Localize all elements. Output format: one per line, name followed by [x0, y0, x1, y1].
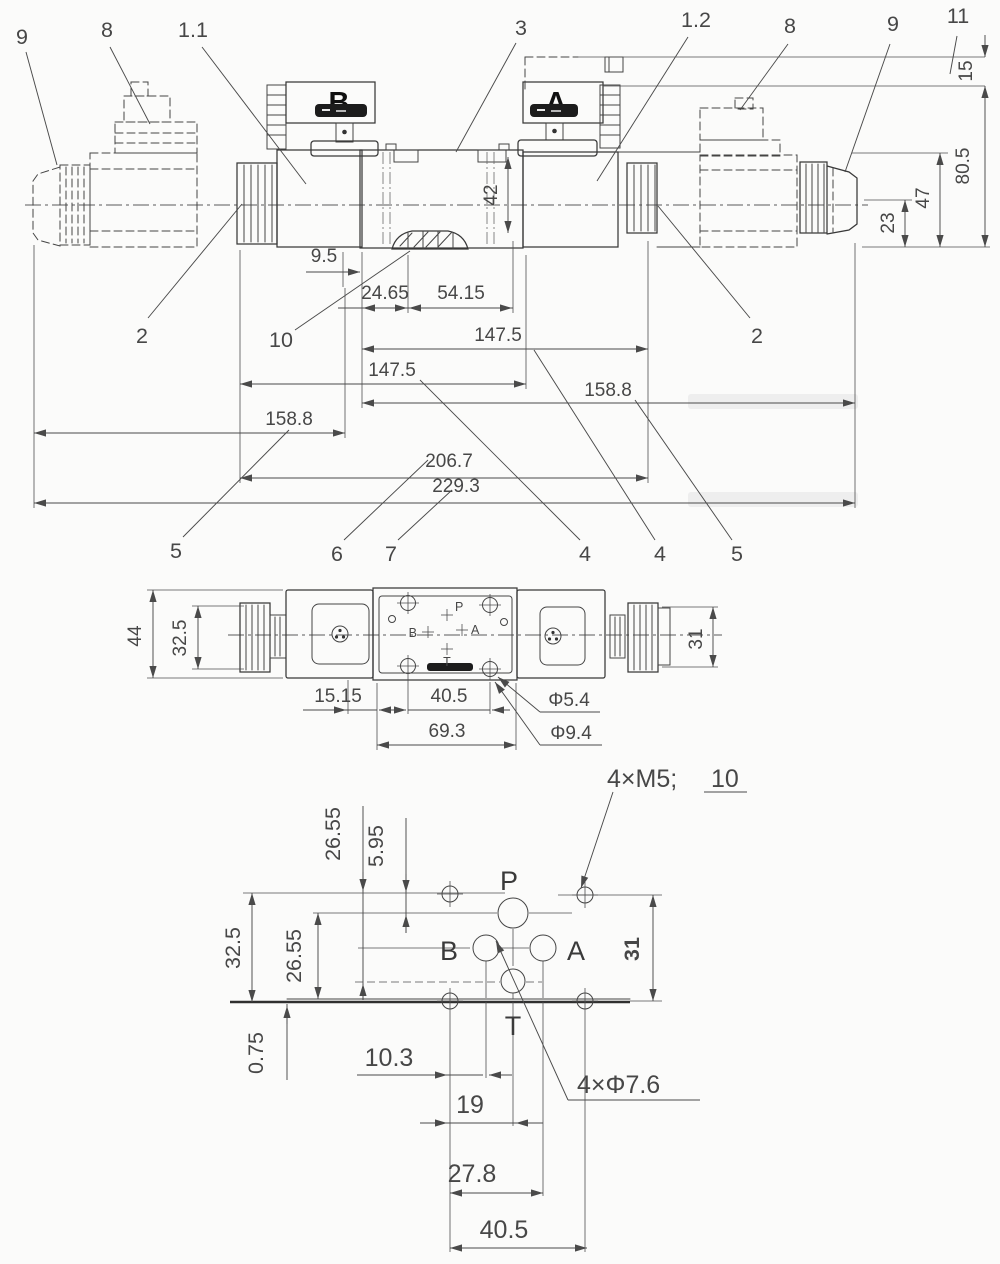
dim-206-7: 206.7 [425, 451, 473, 472]
dim-147-5-b: 147.5 [368, 360, 416, 381]
callout-11: 11 [947, 4, 969, 28]
callout-9-left: 9 [16, 25, 28, 49]
callout-8-left: 8 [101, 18, 113, 42]
dim-0-75: 0.75 [244, 1032, 268, 1074]
callout-5-right: 5 [731, 542, 743, 566]
dim-19: 19 [456, 1091, 484, 1119]
right-dashed-solenoid [700, 98, 857, 247]
dim-5-95: 5.95 [364, 825, 388, 867]
port-a-mark: A [471, 623, 480, 637]
drawing-page: B A [0, 0, 1000, 1264]
port-a-hole [530, 935, 556, 961]
front-dims-right: 15 80.5 47 23 42 [481, 35, 985, 247]
callout-6: 6 [331, 542, 343, 566]
dim-54-15: 54.15 [437, 283, 485, 304]
thread-depth: 10 [711, 765, 739, 793]
dim-47: 47 [913, 187, 934, 208]
dim-24-65: 24.65 [361, 283, 409, 304]
dim-31-bottom: 31 [620, 937, 644, 961]
dim-69-3: 69.3 [429, 721, 466, 742]
dim-40-5-bottom: 40.5 [480, 1216, 529, 1244]
dim-32-5-bottom: 32.5 [221, 927, 245, 969]
callout-10: 10 [269, 328, 293, 352]
right-solenoid [523, 152, 700, 247]
hole-callout: 4×Φ7.6 [577, 1071, 660, 1099]
front-dims-bottom: 9.5 24.65 54.15 147.5 147.5 158.8 158.8 … [34, 241, 855, 508]
left-dashed-solenoid [33, 82, 197, 247]
callout-1-1: 1.1 [178, 18, 208, 42]
top-view: P B A T 44 32.5 31 15.15 40.5 69.3 Φ5.4 [125, 588, 722, 750]
dim-15: 15 [956, 60, 977, 81]
port-p-label: P [500, 866, 518, 896]
dim-10-3: 10.3 [365, 1044, 414, 1072]
dim-26-55-left: 26.55 [282, 929, 306, 983]
front-view: B A [16, 4, 990, 566]
callout-8-right: 8 [784, 14, 796, 38]
port-p-mark: P [455, 600, 463, 614]
watermark-smudge [688, 394, 858, 409]
callout-1-2: 1.2 [681, 8, 711, 32]
dim-23: 23 [878, 212, 899, 233]
dim-158-8-right: 158.8 [584, 380, 632, 401]
port-a-label: A [567, 936, 585, 966]
callout-3: 3 [515, 16, 527, 40]
bottom-view-dims: 32.5 26.55 26.55 5.95 0.75 31 10.3 19 27… [221, 806, 653, 1248]
bottom-view-callouts: 4×M5; 10 4×Φ7.6 [496, 765, 747, 1100]
callout-2-right: 2 [751, 324, 763, 348]
port-t-label: T [505, 1011, 522, 1041]
dim-147-5-a: 147.5 [474, 325, 522, 346]
dim-158-8-left: 158.8 [265, 409, 313, 430]
dim-phi-5-4: Φ5.4 [548, 690, 590, 711]
callout-5-left: 5 [170, 539, 182, 563]
dim-80-5: 80.5 [953, 148, 974, 185]
callout-9-right: 9 [887, 12, 899, 36]
dim-44: 44 [125, 625, 146, 647]
connector-a: A [518, 82, 620, 156]
dim-42: 42 [481, 184, 502, 205]
port-b-hole [473, 935, 499, 961]
dim-32-5-top-view: 32.5 [170, 620, 191, 657]
technical-drawing: B A [0, 0, 1000, 1264]
port-b-mark: B [409, 626, 417, 640]
port-t-mark: T [443, 655, 451, 669]
bottom-view: P B A T 32.5 26.55 26.55 5.95 0.75 31 10… [221, 765, 747, 1252]
front-callouts: 9 8 1.1 3 1.2 8 9 11 2 2 10 5 6 7 4 4 5 [16, 4, 969, 566]
callout-4-a: 4 [579, 542, 591, 566]
port-holes [473, 898, 556, 993]
dim-phi-9-4: Φ9.4 [550, 723, 592, 744]
nameplate [392, 231, 468, 249]
callout-4-b: 4 [654, 542, 666, 566]
port-p-hole [498, 898, 528, 928]
callout-2-left: 2 [136, 324, 148, 348]
port-b-label: B [440, 936, 458, 966]
connector-b: B [267, 82, 378, 156]
dim-27-8: 27.8 [448, 1160, 497, 1188]
top-view-dims: 44 32.5 31 15.15 40.5 69.3 Φ5.4 Φ9.4 [125, 590, 718, 750]
dim-26-55-top: 26.55 [321, 807, 345, 861]
bottom-view-port-labels: P B A T [440, 866, 585, 1041]
thread-callout: 4×M5; [607, 765, 677, 793]
left-solenoid [237, 150, 362, 247]
dim-229-3: 229.3 [432, 476, 480, 497]
dim-15-15: 15.15 [314, 686, 362, 707]
top-view-ports: P B A T [409, 600, 480, 669]
port-t-hole [501, 969, 525, 993]
dim-31-top-view: 31 [686, 628, 707, 649]
callout-7: 7 [385, 542, 397, 566]
dim-40-5-top-view: 40.5 [431, 686, 468, 707]
dim-9-5: 9.5 [311, 246, 337, 267]
watermark-smudge [688, 492, 858, 507]
